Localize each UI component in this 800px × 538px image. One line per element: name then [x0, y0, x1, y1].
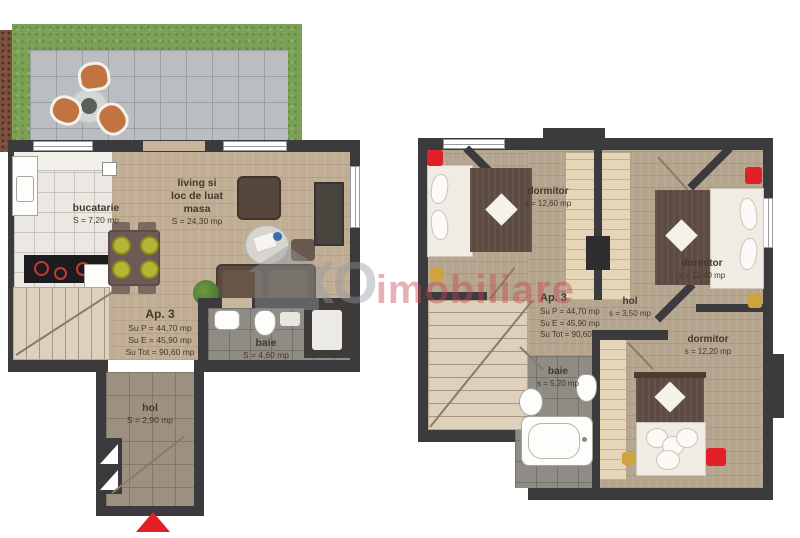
- dining-seat: [140, 260, 159, 279]
- upper-floor-plan: dormitor s = 12,60 mp dormitor s = 12,40…: [418, 128, 784, 504]
- hall-label: hol S = 2,90 mp: [116, 402, 184, 426]
- wall-center: [594, 150, 602, 300]
- bath-label: baie s = 5,20 mp: [528, 366, 588, 389]
- pouf: [291, 239, 315, 261]
- wall-bottom: [196, 360, 360, 372]
- wardrobe: [566, 153, 594, 300]
- window: [33, 141, 93, 151]
- burner: [54, 267, 67, 280]
- wall-bottom: [8, 360, 108, 372]
- bedroom1-label: dormitor s = 12,60 mp: [506, 186, 590, 209]
- pillow: [656, 450, 680, 470]
- sink: [519, 388, 543, 416]
- bath-label: baie S = 4,60 mp: [236, 337, 296, 361]
- kitchen-sink: [16, 176, 34, 202]
- wall-right: [763, 138, 773, 500]
- wall-bath-right: [592, 340, 600, 490]
- bedroom2-label: dormitor s = 12,40 mp: [656, 258, 748, 281]
- red-seat: [706, 448, 726, 466]
- slippers: [622, 452, 635, 465]
- shower-tray: [312, 310, 342, 350]
- slippers: [430, 268, 444, 281]
- window: [350, 166, 360, 228]
- kitchen-label: bucatarie S = 7,20 mp: [36, 202, 156, 226]
- wardrobe-handles: [586, 236, 610, 270]
- bathtub: [521, 416, 593, 466]
- dining-seat: [112, 236, 131, 255]
- niche-window: [100, 470, 118, 490]
- wall-bedroom3-top: [592, 330, 668, 340]
- pillow: [676, 428, 698, 448]
- wall-bedroom1: [427, 292, 487, 300]
- dining-seat: [140, 236, 159, 255]
- dining-seat: [112, 260, 131, 279]
- wall-hall-right: [194, 360, 204, 516]
- tv-unit: [314, 182, 344, 246]
- red-pillow: [745, 167, 762, 184]
- bathtub-inner: [528, 423, 580, 459]
- burner: [34, 261, 49, 276]
- ground-floor-plan: bucatarie S = 7,20 mp living si loc de l…: [8, 24, 360, 536]
- bathtub-drain: [582, 437, 587, 442]
- red-pillow: [427, 150, 443, 166]
- terrace-door-opening: [143, 141, 205, 151]
- niche-window: [100, 444, 118, 464]
- window: [443, 139, 505, 149]
- bath-door-opening: [222, 298, 252, 308]
- cup: [273, 232, 282, 241]
- side-table: [244, 224, 290, 266]
- bedroom3-label: dormitor s = 12,20 mp: [662, 334, 754, 357]
- entrance-arrow-icon: [136, 512, 170, 532]
- window: [223, 141, 287, 151]
- apartment-info: Ap. 3 Su P = 44,70 mp Su E = 45,90 mp Su…: [104, 306, 216, 358]
- shower: [304, 302, 350, 358]
- terrace-table-top: [81, 98, 97, 114]
- window: [763, 198, 773, 248]
- slippers: [748, 294, 762, 308]
- wall-bottom: [528, 488, 772, 500]
- wardrobe: [602, 153, 630, 300]
- sink: [214, 310, 240, 330]
- door-threshold: [102, 162, 117, 176]
- toilet: [254, 310, 276, 336]
- living-label: living si loc de luat masa S = 24,30 mp: [147, 177, 247, 227]
- bath-mat: [280, 312, 300, 326]
- floorplan-image: bucatarie S = 7,20 mp living si loc de l…: [0, 0, 800, 538]
